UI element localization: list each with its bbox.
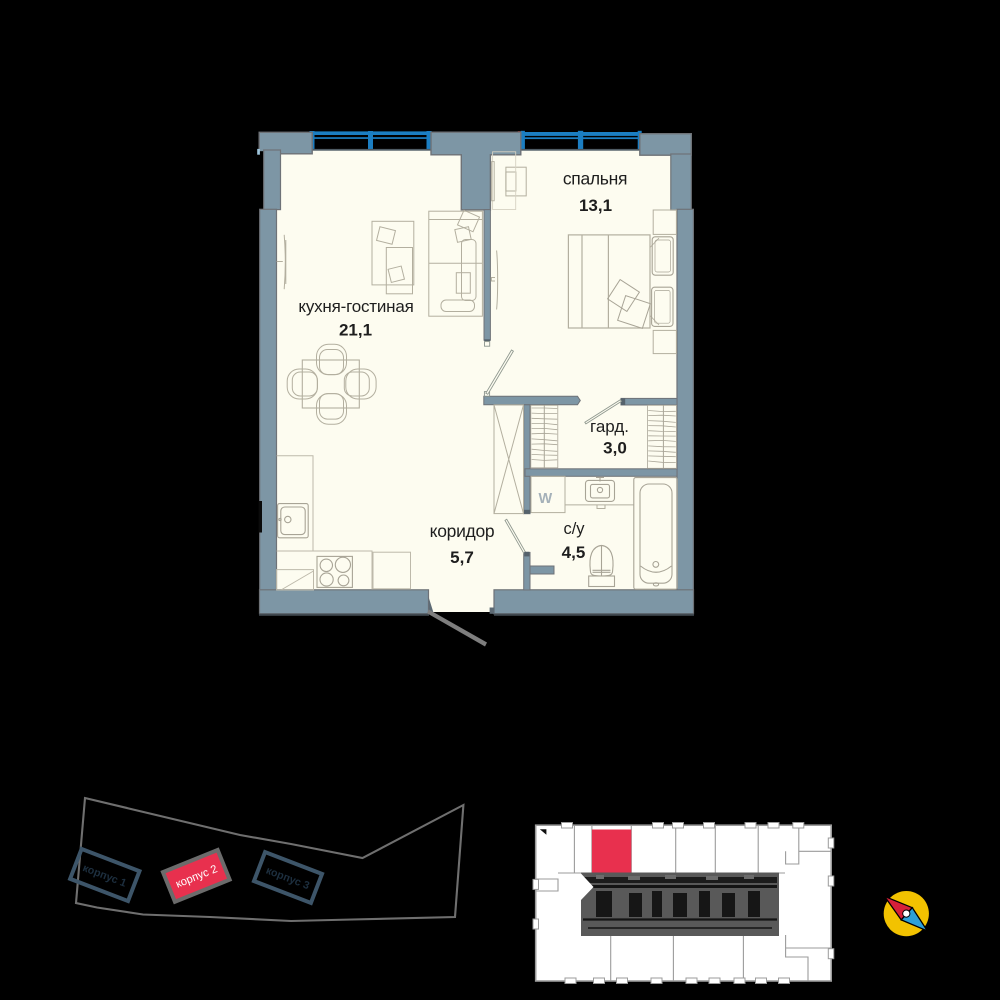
svg-text:спальня: спальня <box>563 169 627 189</box>
svg-text:кухня-гостиная: кухня-гостиная <box>298 297 413 316</box>
svg-text:13,1: 13,1 <box>579 196 612 215</box>
svg-text:W: W <box>539 491 553 507</box>
svg-text:с/у: с/у <box>563 520 585 538</box>
svg-text:гард.: гард. <box>590 417 629 436</box>
svg-text:4,5: 4,5 <box>562 543 586 562</box>
svg-text:21,1: 21,1 <box>339 321 372 340</box>
svg-text:коридор: коридор <box>430 521 495 541</box>
svg-text:5,7: 5,7 <box>450 548 474 567</box>
svg-text:3,0: 3,0 <box>603 439 627 458</box>
